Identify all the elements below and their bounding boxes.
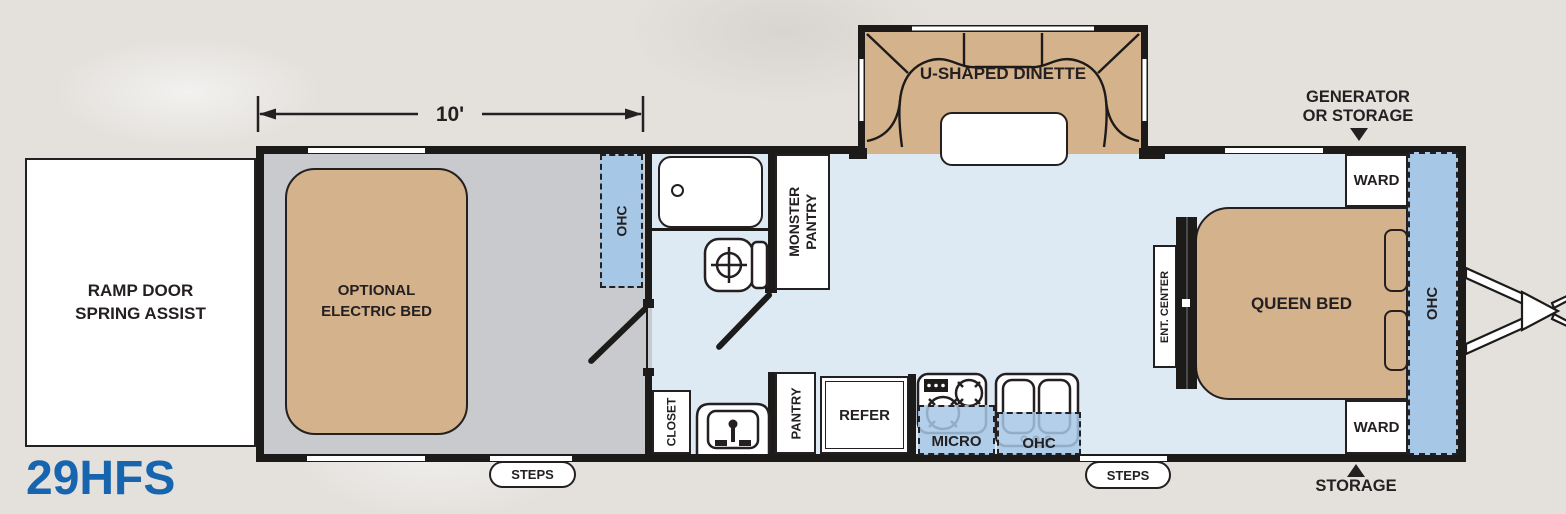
model-number: 29HFS (26, 455, 175, 503)
kitchen-ohc-cabinet: OHC (997, 412, 1081, 455)
dinette-wall-stub-left (849, 148, 867, 159)
garage-side-door-opening (490, 456, 572, 461)
dimension-line: 10' (250, 94, 650, 134)
garage-top-window (308, 148, 425, 153)
refrigerator-label: REFER (839, 407, 890, 424)
garage-doorway-threshold (646, 307, 648, 368)
tv-icon (1176, 217, 1197, 389)
toilet (703, 236, 771, 294)
queen-bed-label: QUEEN BED (1251, 294, 1352, 314)
dimension-arrow-right (625, 109, 642, 120)
tv-mount (1182, 299, 1190, 307)
dinette-table (940, 112, 1068, 166)
storage-arrow-icon (1347, 464, 1365, 477)
micro-cabinet: MICRO (918, 405, 995, 455)
floor-plan: 10' RAMP DOOR SPRING ASSIST OPTIONAL ELE… (0, 0, 1566, 514)
steps-entry-label: STEPS (1107, 468, 1150, 483)
steps-garage: STEPS (489, 461, 576, 488)
garage-ohc-label: OHC (614, 205, 630, 236)
optional-bed-label-line1: OPTIONAL (321, 281, 432, 301)
ramp-door-label-line1: RAMP DOOR (75, 280, 206, 302)
ramp-door-label-line2: SPRING ASSIST (75, 303, 206, 325)
vanity-sink (693, 400, 773, 454)
garage-bottom-window (307, 456, 425, 461)
generator-label-line1: GENERATOR (1283, 88, 1433, 107)
pillow (1384, 310, 1408, 371)
dinette-top-window (912, 27, 1094, 31)
shower-tub (658, 156, 763, 228)
ramp-door: RAMP DOOR SPRING ASSIST (25, 158, 256, 447)
refrigerator: REFER (820, 376, 909, 454)
garage-partition-upper (645, 154, 652, 307)
bedroom-ohc-label: OHC (1425, 287, 1442, 320)
entry-door-opening (1080, 456, 1167, 461)
ward-bottom-label: WARD (1354, 419, 1400, 436)
dimension-arrow-left (259, 109, 276, 120)
right-wall (1458, 146, 1466, 462)
trailer-hitch (1466, 250, 1566, 372)
micro-label: MICRO (932, 433, 982, 453)
kitchen-pantry-label: PANTRY (788, 387, 803, 439)
generator-label-line2: OR STORAGE (1283, 107, 1433, 126)
ent-center: ENT. CENTER (1153, 245, 1177, 368)
bedroom-ohc-cabinet: OHC (1408, 152, 1458, 455)
garage-partition-lower (645, 368, 652, 454)
monster-pantry-label-line2: PANTRY (803, 187, 820, 257)
ent-center-label: ENT. CENTER (1159, 270, 1171, 342)
dinette-wall-stub-right (1139, 148, 1165, 159)
optional-electric-bed: OPTIONAL ELECTRIC BED (285, 168, 468, 435)
tub-drain-icon (671, 184, 684, 197)
ward-top: WARD (1345, 154, 1408, 207)
generator-label: GENERATOR OR STORAGE (1283, 88, 1433, 126)
kitchen-ohc-label: OHC (1022, 435, 1055, 453)
bottom-wall (256, 454, 1466, 462)
kitchen-pantry: PANTRY (775, 372, 816, 454)
storage-label: STORAGE (1300, 477, 1412, 496)
bedroom-top-window (1225, 148, 1323, 153)
closet-label: CLOSET (665, 398, 679, 447)
dinette-left-window (860, 59, 864, 121)
steps-garage-label: STEPS (511, 467, 554, 482)
door-jamb (643, 368, 654, 376)
closet: CLOSET (652, 390, 691, 454)
ward-top-label: WARD (1354, 172, 1400, 189)
monster-pantry: MONSTER PANTRY (775, 154, 830, 290)
optional-bed-label-line2: ELECTRIC BED (321, 302, 432, 322)
tub-platform-edge (652, 228, 770, 231)
hitch-coupler-icon (1522, 292, 1558, 330)
generator-arrow-icon (1350, 128, 1368, 141)
ward-bottom: WARD (1345, 400, 1408, 454)
garage-ohc-cabinet: OHC (600, 154, 643, 288)
left-wall (256, 146, 264, 462)
pillow (1384, 229, 1408, 292)
refer-partition (908, 374, 916, 454)
queen-bed: QUEEN BED (1195, 207, 1408, 400)
dinette-right-window (1143, 59, 1147, 121)
monster-pantry-label-line1: MONSTER (786, 187, 803, 257)
dinette-label: U-SHAPED DINETTE (868, 64, 1138, 84)
steps-entry: STEPS (1085, 461, 1171, 489)
dimension-label: 10' (436, 103, 464, 126)
